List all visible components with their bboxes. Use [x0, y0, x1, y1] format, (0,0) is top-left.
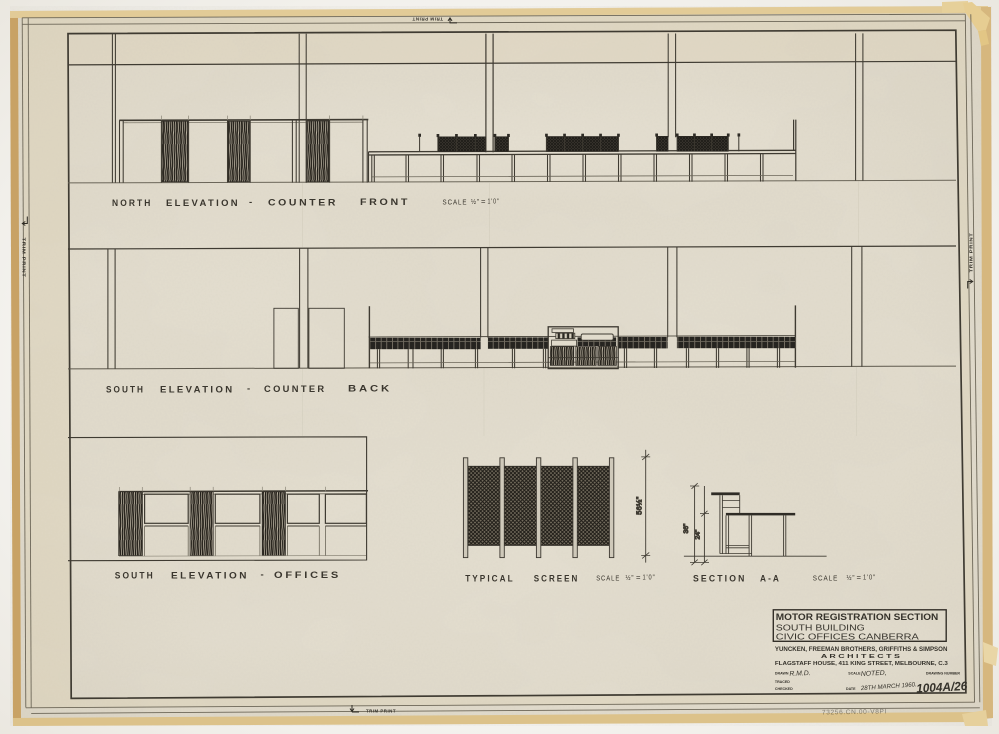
svg-text:SCREEN: SCREEN	[534, 574, 580, 585]
svg-text:FLAGSTAFF HOUSE, 411 KING STRE: FLAGSTAFF HOUSE, 411 KING STREET, MELBOU…	[775, 661, 948, 667]
svg-text:COUNTER: COUNTER	[268, 198, 338, 209]
svg-text:56½": 56½"	[635, 496, 644, 515]
svg-text:SCALE: SCALE	[443, 198, 468, 207]
svg-text:TRIM PRINT: TRIM PRINT	[969, 233, 974, 273]
svg-text:=: =	[481, 197, 487, 206]
svg-text:SCALE: SCALE	[848, 672, 861, 676]
svg-text:R.M.D.: R.M.D.	[789, 670, 810, 678]
svg-text:BACK: BACK	[348, 384, 392, 395]
svg-text:=: =	[636, 573, 642, 582]
svg-text:½": ½"	[626, 573, 635, 582]
svg-text:½": ½"	[847, 573, 856, 582]
svg-text:NORTH: NORTH	[112, 198, 153, 209]
svg-text:TYPICAL: TYPICAL	[465, 574, 515, 585]
svg-text:ELEVATION: ELEVATION	[166, 198, 240, 209]
svg-text:NOTED,: NOTED,	[861, 670, 887, 678]
svg-text:CHECKED: CHECKED	[775, 687, 793, 691]
svg-text:-: -	[247, 384, 253, 395]
svg-text:COUNTER: COUNTER	[264, 384, 327, 395]
svg-text:A R C H I T E C T S: A R C H I T E C T S	[821, 654, 900, 660]
svg-text:TRACED: TRACED	[775, 680, 790, 684]
svg-text:1'0": 1'0"	[643, 573, 656, 582]
svg-text:24": 24"	[695, 529, 702, 540]
svg-text:SCALE: SCALE	[813, 574, 839, 583]
svg-text:SECTION: SECTION	[693, 574, 747, 585]
svg-text:DATE: DATE	[846, 687, 856, 691]
svg-text:-: -	[249, 197, 255, 208]
svg-text:ELEVATION: ELEVATION	[171, 571, 249, 582]
svg-text:A-A: A-A	[760, 574, 781, 585]
svg-text:-: -	[261, 570, 267, 581]
svg-text:36": 36"	[683, 523, 690, 534]
svg-text:SOUTH BUILDING: SOUTH BUILDING	[776, 624, 865, 633]
svg-text:ELEVATION: ELEVATION	[160, 385, 235, 396]
svg-text:DRAWING NUMBER: DRAWING NUMBER	[926, 672, 961, 676]
svg-text:SOUTH: SOUTH	[115, 571, 155, 582]
svg-text:TRIM PRINT: TRIM PRINT	[412, 17, 443, 22]
svg-text:OFFICES: OFFICES	[274, 570, 341, 581]
svg-text:1'0": 1'0"	[488, 197, 500, 206]
svg-text:DRAWN: DRAWN	[775, 672, 789, 676]
svg-text:SCALE: SCALE	[596, 574, 620, 583]
svg-text:73256.CN.00-V8PI: 73256.CN.00-V8PI	[822, 708, 887, 716]
svg-text:=: =	[857, 573, 863, 582]
svg-text:1004A/26: 1004A/26	[916, 679, 968, 696]
svg-text:FRONT: FRONT	[360, 197, 410, 208]
svg-text:YUNCKEN, FREEMAN BROTHERS, GRI: YUNCKEN, FREEMAN BROTHERS, GRIFFITHS & S…	[775, 646, 948, 653]
svg-text:MOTOR REGISTRATION SECTION: MOTOR REGISTRATION SECTION	[776, 612, 939, 622]
svg-text:SOUTH: SOUTH	[106, 385, 145, 396]
svg-text:TRIM PRINT: TRIM PRINT	[366, 709, 396, 714]
svg-text:TRIM PRINT: TRIM PRINT	[22, 238, 27, 278]
svg-text:CIVIC OFFICES CANBERRA: CIVIC OFFICES CANBERRA	[776, 633, 920, 642]
svg-text:1'0": 1'0"	[863, 573, 876, 582]
svg-text:½": ½"	[471, 197, 480, 206]
